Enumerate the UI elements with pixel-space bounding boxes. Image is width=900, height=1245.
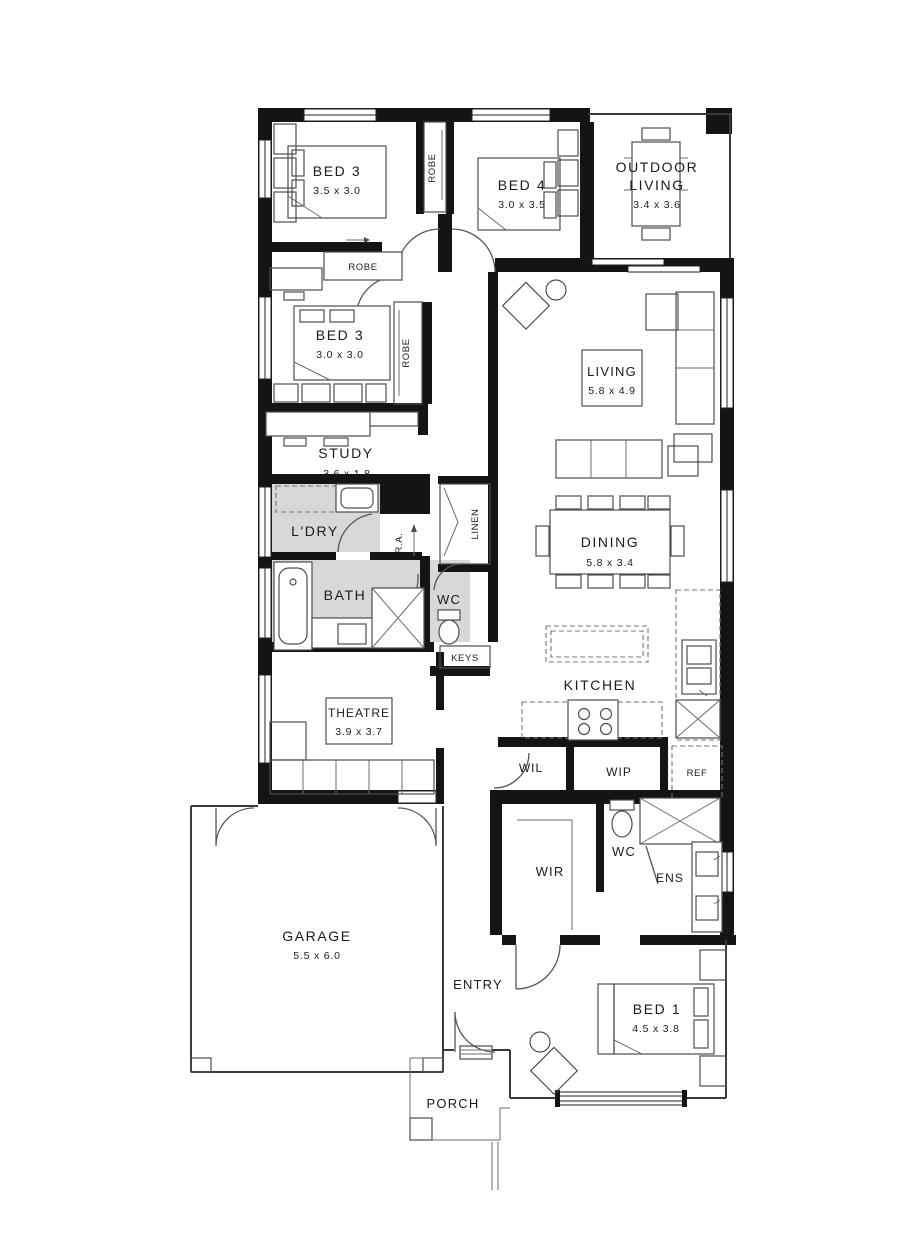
dining-dims: 5.8 x 3.4 <box>586 557 633 569</box>
pier-column <box>706 108 732 134</box>
window-right-ens <box>721 852 733 892</box>
window-left-bath <box>259 568 271 638</box>
robe1-label: ROBE <box>427 153 438 182</box>
window-top-1 <box>304 109 376 121</box>
bed4-door-arc <box>452 229 495 272</box>
ens-label: ENS <box>656 871 684 885</box>
wc-main-label: WC <box>437 592 461 607</box>
dining-label: DINING <box>581 534 640 550</box>
study-label: STUDY <box>318 445 373 461</box>
bed1-armchair-icon <box>530 1032 577 1094</box>
living-label: LIVING <box>587 364 637 379</box>
tall-cupboard <box>380 482 430 514</box>
floor-plan-page: BED 3 3.5 x 3.0 ROBE BED 4 3.0 x 3.5 OUT… <box>0 0 900 1245</box>
kitchen-label: KITCHEN <box>564 677 637 693</box>
return-air-label: R.A. <box>394 533 405 554</box>
bed3top-dims: 3.5 x 3.0 <box>313 185 360 197</box>
living-dims: 5.8 x 4.9 <box>588 385 635 397</box>
laundry-label: L'DRY <box>291 523 339 539</box>
porch-label: PORCH <box>427 1096 480 1111</box>
bed1-label: BED 1 <box>633 1001 681 1017</box>
theatre-dims: 3.9 x 3.7 <box>335 726 382 738</box>
laundry-trough-icon <box>336 484 378 512</box>
wil-label: WIL <box>519 761 543 775</box>
outdoor-living-label-2: LIVING <box>629 177 685 193</box>
bed3top-door-arc <box>397 229 440 272</box>
garage-side-door-arc <box>216 808 254 846</box>
floor-plan-drawing: BED 3 3.5 x 3.0 ROBE BED 4 3.0 x 3.5 OUT… <box>0 0 900 1245</box>
wir-label: WIR <box>536 864 565 879</box>
bathtub-icon <box>274 562 312 650</box>
sofa-icon <box>556 440 698 478</box>
window-left-bed3mid <box>259 297 271 379</box>
study-dims: 3.6 x 1.8 <box>323 468 370 480</box>
robe3-label: ROBE <box>401 338 412 367</box>
window-right-dining <box>721 490 733 582</box>
bath-label: BATH <box>324 587 367 603</box>
keys-label: KEYS <box>451 653 479 664</box>
kitchen-island <box>546 626 648 662</box>
armchair-icon <box>503 280 566 329</box>
bed3mid-dresser <box>270 268 322 300</box>
bed1-door-arc <box>516 945 560 989</box>
outdoor-living-label-1: OUTDOOR <box>616 159 699 175</box>
bed1-bed-icon <box>598 950 726 1086</box>
corner-sofa-icon <box>646 292 714 462</box>
bed3mid-label: BED 3 <box>316 327 364 343</box>
ref-label: REF <box>687 768 708 779</box>
shower-icon <box>372 588 424 648</box>
ens-shower-icon <box>640 798 720 844</box>
garage-dims: 5.5 x 6.0 <box>293 950 340 962</box>
window-top-2 <box>472 109 550 121</box>
cooktop-bench <box>522 700 662 740</box>
window-bed1-front <box>555 1090 687 1107</box>
porch-pier <box>410 1118 432 1140</box>
linen-label: LINEN <box>470 509 481 540</box>
study-desk-icon <box>266 412 418 446</box>
ens-vanity-icon <box>692 842 722 932</box>
wip-label: WIP <box>606 765 632 779</box>
bed3mid-dims: 3.0 x 3.0 <box>316 349 363 361</box>
ens-toilet-icon <box>610 800 634 837</box>
theatre-label: THEATRE <box>328 706 390 720</box>
garage-label: GARAGE <box>282 928 352 944</box>
bed4-dims: 3.0 x 3.5 <box>498 199 545 211</box>
bed3top-label: BED 3 <box>313 163 361 179</box>
master-suite-furniture <box>517 798 726 1094</box>
toilet-icon <box>438 610 460 644</box>
window-left-bed3top <box>259 140 271 198</box>
window-left-theatre <box>259 675 271 763</box>
bed1-dims: 4.5 x 3.8 <box>632 1023 679 1035</box>
robe2-label: ROBE <box>348 262 377 273</box>
bed4-label: BED 4 <box>498 177 546 193</box>
outdoor-living-dims: 3.4 x 3.6 <box>633 199 680 211</box>
window-left-laundry <box>259 487 271 557</box>
garage-house-door-arc <box>398 808 436 846</box>
window-right-living <box>721 298 733 408</box>
linen-bifold <box>444 488 458 556</box>
entry-label: ENTRY <box>453 977 503 992</box>
stove-icon <box>568 700 618 740</box>
path-lines <box>492 1142 498 1190</box>
kitchen-side-bench <box>672 590 722 798</box>
wc-ens-label: WC <box>612 844 636 859</box>
